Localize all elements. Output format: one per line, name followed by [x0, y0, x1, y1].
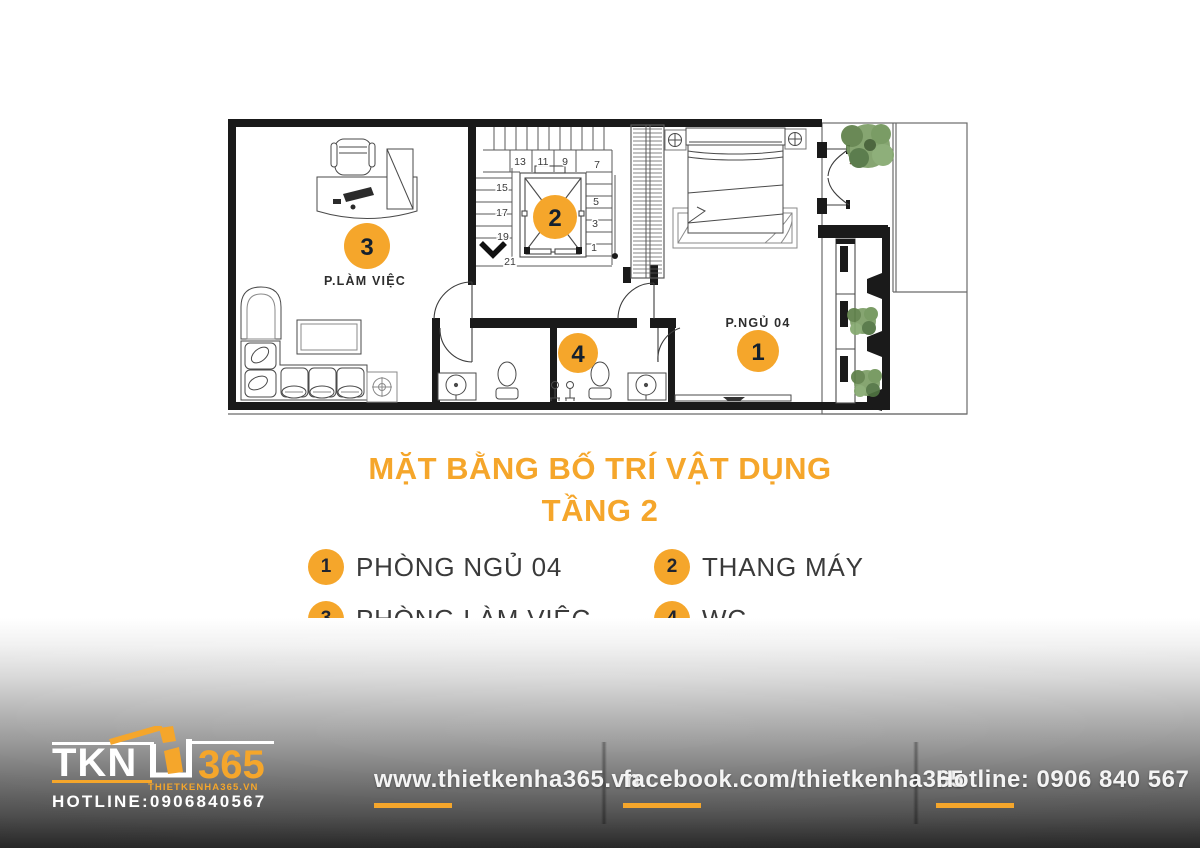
legend-label: THANG MÁY [702, 552, 864, 583]
toilet [589, 362, 611, 399]
downlight-icon [785, 129, 806, 149]
stair-number: 1 [591, 242, 597, 254]
plan-title-line1: MẶT BẰNG BỐ TRÍ VẬT DỤNG [0, 448, 1200, 490]
poster-canvas: 13 11 9 7 15 17 19 21 5 3 1 P.LÀM VIỆC P… [0, 0, 1200, 848]
legend-item-1: 1 PHÒNG NGỦ 04 [308, 549, 654, 585]
marker-2-number: 2 [548, 205, 561, 232]
legend-label: PHÒNG NGỦ 04 [356, 552, 562, 583]
link-underline [623, 803, 701, 808]
bench [675, 395, 791, 401]
plant-icon [851, 369, 882, 397]
facebook-link-text: facebook.com/thietkenha365 [623, 766, 964, 794]
wardrobe [631, 125, 664, 278]
lounge-chair [241, 287, 281, 339]
room-label-bedroom: P.NGỦ 04 [726, 315, 791, 330]
office-furniture [241, 139, 417, 402]
legend-number-badge: 1 [308, 549, 344, 585]
floor-plan: 13 11 9 7 15 17 19 21 5 3 1 P.LÀM VIỆC P… [225, 115, 970, 420]
marker-4: 4 [558, 333, 598, 373]
office-chair [331, 139, 375, 175]
logo-name: TKN [52, 741, 137, 785]
logo-suffix: 365 [198, 743, 265, 787]
link-underline [374, 803, 452, 808]
stair-number: 13 [514, 156, 526, 168]
wardrobe-hatch [633, 129, 662, 273]
website-link-text: www.thietkenha365.vn [374, 766, 641, 794]
plan-title: MẶT BẰNG BỐ TRÍ VẬT DỤNG TẦNG 2 [0, 448, 1200, 532]
logo-hotline: HOTLINE:0906840567 [52, 792, 266, 811]
marker-3-number: 3 [360, 234, 373, 261]
tree-icon [841, 124, 894, 168]
room-label-office: P.LÀM VIỆC [324, 273, 406, 288]
stair-number: 5 [593, 196, 599, 208]
plant-icon [847, 307, 878, 335]
marker-1-number: 1 [751, 339, 764, 366]
bed [686, 128, 785, 233]
downlight-icon [665, 130, 686, 150]
marker-2: 2 [533, 195, 577, 239]
plant-box [367, 372, 397, 402]
sink [628, 373, 666, 400]
planter [867, 273, 882, 299]
walls [228, 119, 890, 410]
marker-3: 3 [344, 223, 390, 269]
website-link[interactable]: www.thietkenha365.vn [374, 766, 641, 808]
hotline-link[interactable]: Hotline: 0906 840 567 [936, 766, 1189, 808]
stair-number: 19 [497, 231, 509, 243]
sink [438, 373, 476, 400]
bedroom-furniture [665, 128, 806, 401]
company-logo: TKN 365 THIETKENHA365.VN HOTLINE:0906840… [52, 726, 287, 814]
stair-number: 15 [496, 182, 508, 194]
coffee-table [297, 320, 361, 354]
marker-4-number: 4 [571, 341, 585, 368]
hotline-link-text: Hotline: 0906 840 567 [936, 766, 1189, 794]
cabinet [387, 149, 413, 209]
marker-1: 1 [737, 330, 779, 372]
toilet [496, 362, 518, 399]
legend-item-2: 2 THANG MÁY [654, 549, 864, 585]
stair-number: 9 [562, 156, 568, 168]
stair-number: 11 [538, 156, 549, 168]
stair-number: 17 [496, 207, 508, 219]
stair-number: 7 [594, 159, 600, 171]
stair-number: 3 [592, 218, 598, 230]
facebook-link[interactable]: facebook.com/thietkenha365 [623, 766, 964, 808]
shower-icon [565, 382, 575, 402]
legend-number-badge: 2 [654, 549, 690, 585]
link-underline [936, 803, 1014, 808]
stair-number: 21 [504, 256, 516, 268]
plan-title-line2: TẦNG 2 [0, 490, 1200, 532]
